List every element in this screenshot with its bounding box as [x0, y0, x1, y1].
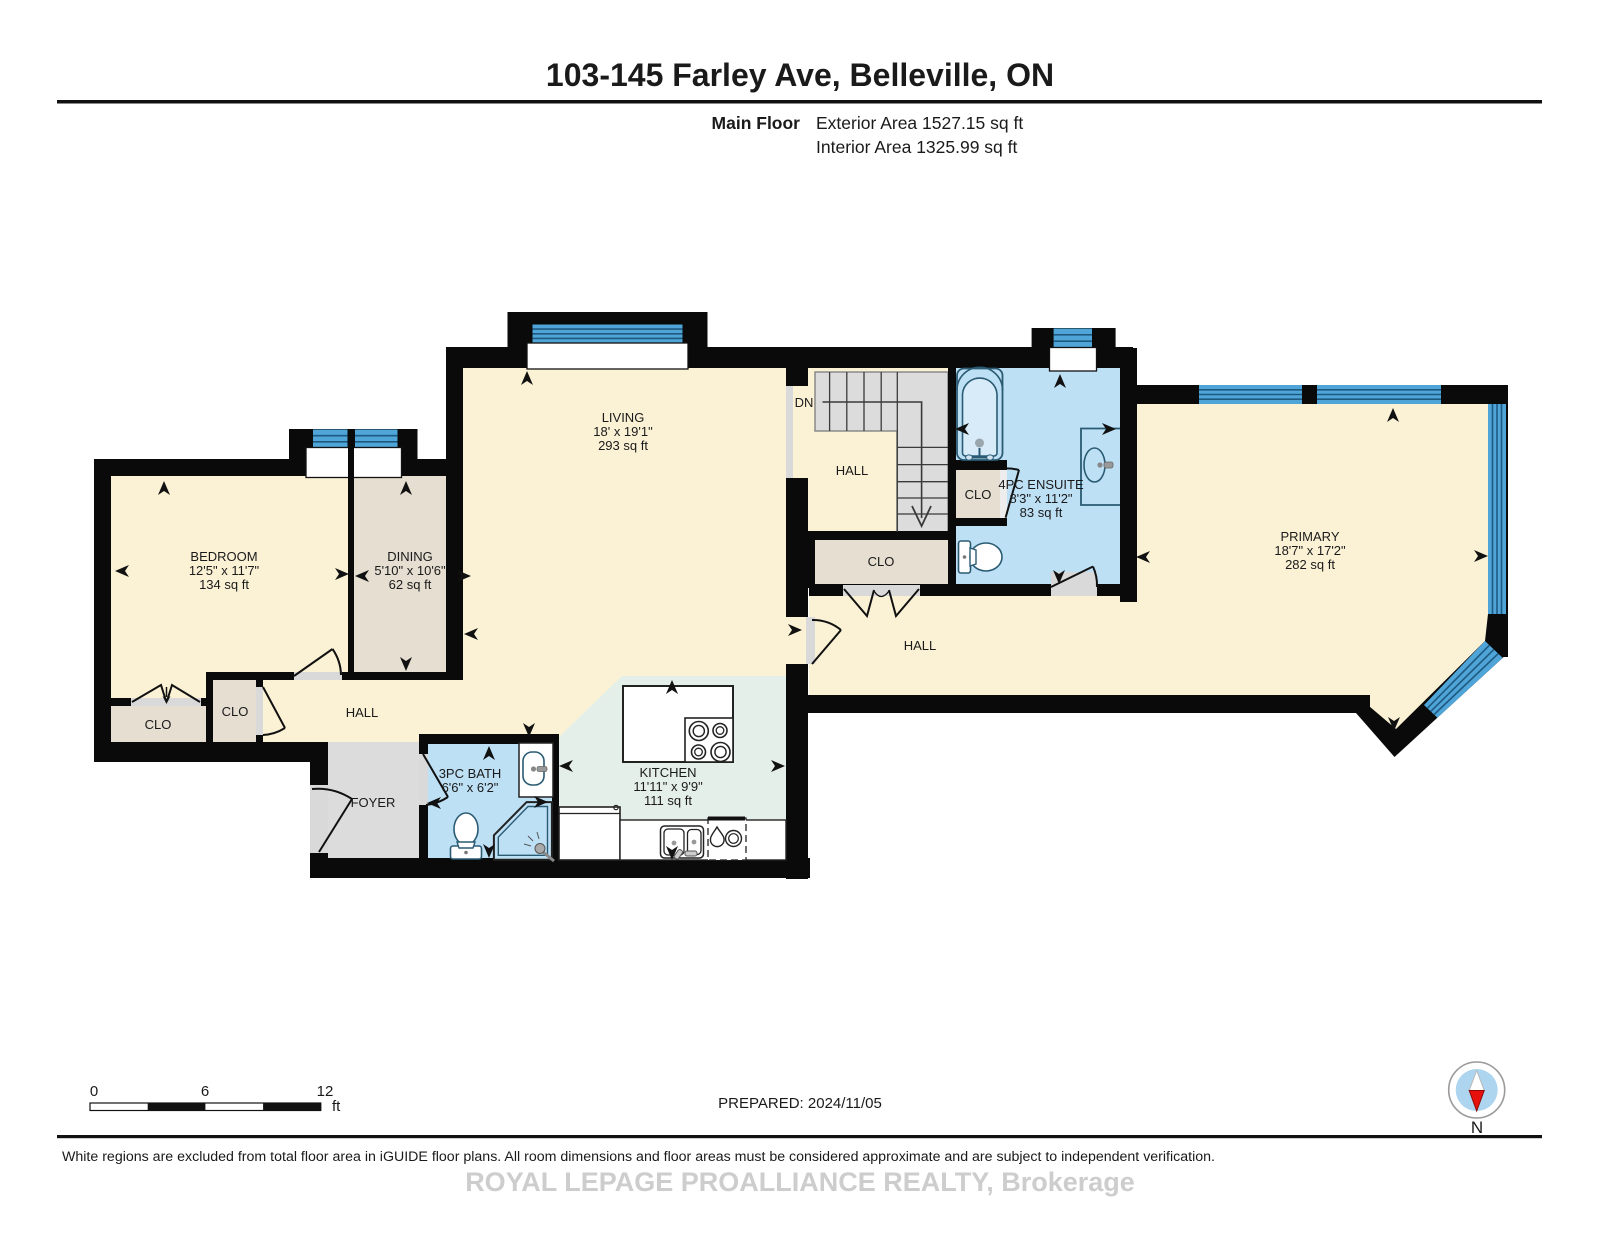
- svg-text:CLO: CLO: [868, 554, 895, 569]
- svg-text:12'5" x 11'7": 12'5" x 11'7": [189, 563, 260, 578]
- svg-text:12: 12: [317, 1083, 334, 1100]
- svg-text:CLO: CLO: [222, 704, 249, 719]
- svg-text:0: 0: [90, 1083, 98, 1100]
- svg-text:CLO: CLO: [145, 717, 172, 732]
- svg-text:Exterior Area 1527.15 sq ft: Exterior Area 1527.15 sq ft: [816, 113, 1023, 133]
- svg-text:62 sq ft: 62 sq ft: [389, 577, 432, 592]
- svg-text:6: 6: [201, 1083, 209, 1100]
- svg-text:282 sq ft: 282 sq ft: [1285, 557, 1335, 572]
- svg-text:PREPARED: 2024/11/05: PREPARED: 2024/11/05: [718, 1095, 882, 1112]
- svg-text:18'7" x 17'2": 18'7" x 17'2": [1274, 543, 1346, 558]
- svg-text:293 sq ft: 293 sq ft: [598, 438, 648, 453]
- svg-text:Main Floor: Main Floor: [712, 113, 801, 133]
- svg-text:BEDROOM: BEDROOM: [190, 549, 257, 564]
- svg-text:HALL: HALL: [836, 463, 869, 478]
- svg-text:111 sq ft: 111 sq ft: [644, 793, 692, 808]
- svg-text:ft: ft: [332, 1098, 341, 1115]
- svg-text:HALL: HALL: [904, 638, 937, 653]
- svg-text:KITCHEN: KITCHEN: [639, 765, 696, 780]
- svg-text:83 sq ft: 83 sq ft: [1020, 505, 1063, 520]
- svg-text:LIVING: LIVING: [602, 410, 645, 425]
- svg-text:DINING: DINING: [387, 549, 433, 564]
- svg-text:ROYAL LEPAGE PROALLIANCE REALT: ROYAL LEPAGE PROALLIANCE REALTY, Brokera…: [465, 1167, 1135, 1197]
- svg-text:134 sq ft: 134 sq ft: [199, 577, 249, 592]
- svg-text:103-145 Farley Ave, Belleville: 103-145 Farley Ave, Belleville, ON: [546, 57, 1054, 93]
- svg-text:White regions are excluded fro: White regions are excluded from total fl…: [62, 1149, 1215, 1165]
- svg-text:PRIMARY: PRIMARY: [1281, 529, 1340, 544]
- svg-text:6'6" x 6'2": 6'6" x 6'2": [442, 780, 499, 795]
- svg-text:3PC BATH: 3PC BATH: [439, 766, 502, 781]
- svg-text:CLO: CLO: [965, 487, 992, 502]
- svg-text:4PC ENSUITE: 4PC ENSUITE: [998, 477, 1084, 492]
- svg-text:11'11" x 9'9": 11'11" x 9'9": [633, 779, 703, 794]
- svg-text:Interior Area 1325.99 sq ft: Interior Area 1325.99 sq ft: [816, 137, 1018, 157]
- svg-text:DN: DN: [795, 395, 814, 410]
- svg-text:N: N: [1471, 1118, 1483, 1137]
- svg-text:FOYER: FOYER: [351, 795, 396, 810]
- svg-text:8'3" x 11'2": 8'3" x 11'2": [1009, 491, 1072, 506]
- svg-text:18' x 19'1": 18' x 19'1": [593, 424, 653, 439]
- svg-text:HALL: HALL: [346, 705, 379, 720]
- svg-text:5'10" x 10'6": 5'10" x 10'6": [374, 563, 446, 578]
